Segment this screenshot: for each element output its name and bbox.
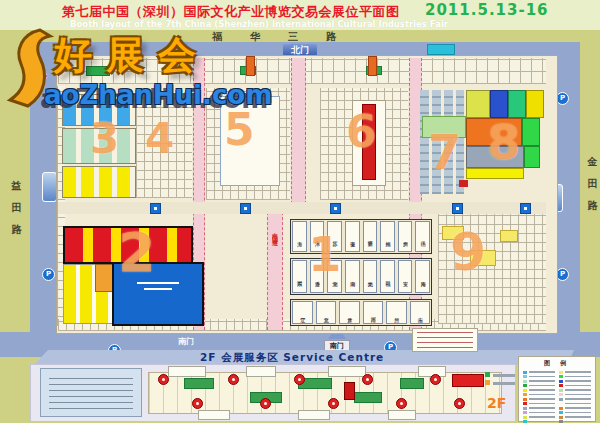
exit-marker-icon — [362, 374, 373, 385]
south-corridor-label: 南门通道 — [270, 228, 279, 236]
legend-row — [523, 393, 555, 397]
exit-marker-icon — [228, 374, 239, 385]
meeting-room-block — [400, 378, 424, 389]
facility-icon — [520, 203, 531, 214]
transit-chip — [427, 44, 455, 55]
hall7-number: 7 — [428, 128, 461, 176]
exit-marker-icon — [328, 398, 339, 409]
corridor-north-gate — [291, 58, 306, 204]
hall5-number: 5 — [224, 108, 255, 152]
province-booth: 安徽 — [345, 221, 360, 252]
service-module — [198, 410, 230, 420]
hall8-block — [524, 146, 540, 168]
legend-row — [523, 384, 555, 388]
hall8-block — [522, 118, 540, 146]
legend-row — [523, 370, 555, 374]
legend-row — [559, 384, 591, 388]
hall2-number: 2 — [118, 226, 156, 280]
province-booth: 保山 — [415, 221, 430, 252]
passage-chip — [368, 56, 377, 76]
hall3-yellow-booths — [62, 166, 136, 198]
hall9-yellow-booth — [500, 230, 518, 242]
legend-row — [559, 379, 591, 383]
facility-icon — [330, 203, 341, 214]
hall6-number: 6 — [346, 110, 377, 154]
west-road-name: 益田路 — [9, 172, 23, 238]
service-module — [168, 366, 206, 377]
exhibition-floorplan: 第七届中国（深圳）国际文化产业博览交易会展位平面图 2011.5.13-16 B… — [0, 0, 600, 423]
legend-row — [523, 402, 555, 406]
legend-row — [523, 415, 555, 419]
exit-marker-icon — [294, 374, 305, 385]
sculpture-west — [42, 172, 57, 202]
parking-icon: P — [42, 268, 55, 281]
exit-marker-icon — [430, 374, 441, 385]
legend-row — [559, 420, 591, 423]
info-text-lines — [417, 332, 473, 348]
gate-info-box — [412, 328, 478, 352]
hall1-number: 1 — [308, 230, 341, 278]
legend-row — [559, 411, 591, 415]
hall3-number: 3 — [90, 118, 119, 160]
east-road-name: 金田路 — [585, 148, 599, 214]
page-subtitle: Booth layout of the 7th China (Shenzhen)… — [70, 19, 448, 29]
hall9-number: 9 — [450, 226, 486, 278]
passage-chip — [246, 56, 255, 76]
legend-column — [559, 370, 591, 423]
facility-icon — [240, 203, 251, 214]
legend-row — [523, 379, 555, 383]
province-booth: 宝安 — [398, 260, 413, 293]
exit-marker-icon — [454, 398, 465, 409]
province-booth-row: 辽宁北京甘肃河南兰州山东 — [290, 299, 432, 326]
province-booth: 甘肃 — [339, 301, 360, 324]
entrance-chip — [86, 66, 110, 76]
legend-row — [559, 388, 591, 392]
mid-concourse — [58, 202, 546, 214]
province-booth: 贵州 — [398, 221, 413, 252]
province-booth: 福田 — [380, 260, 395, 293]
service-module — [328, 366, 366, 377]
province-booth: 兰州 — [386, 301, 407, 324]
hall4-number: 4 — [145, 118, 174, 160]
facility-icon — [150, 203, 161, 214]
province-booth: 新疆 — [363, 221, 378, 252]
service-red-block — [344, 382, 355, 400]
service-module — [298, 410, 330, 420]
legend-row — [523, 388, 555, 392]
service-red-box — [452, 374, 484, 387]
service-left-legend — [40, 368, 142, 417]
province-booth: 福州 — [380, 221, 395, 252]
exit-marker-icon — [396, 398, 407, 409]
hall8-red-chip — [459, 180, 468, 187]
legend-row — [523, 411, 555, 415]
exit-marker-icon — [158, 374, 169, 385]
hall8-block — [526, 90, 544, 118]
service-module — [246, 366, 276, 377]
legend-row — [523, 406, 555, 410]
legend-row — [559, 393, 591, 397]
province-booth: 湖南 — [345, 260, 360, 293]
legend-header: 图 例 — [519, 357, 595, 368]
province-booth: 广东团 — [292, 260, 307, 293]
province-booth: 海南 — [415, 260, 430, 293]
hall8-number: 8 — [487, 118, 520, 166]
legend-row — [523, 420, 555, 423]
event-date: 2011.5.13-16 — [425, 1, 549, 19]
south-gate-road-label: 南门 — [178, 336, 194, 347]
legend-row — [559, 370, 591, 374]
legend-row — [559, 402, 591, 406]
service-module — [388, 410, 416, 420]
legend-column — [523, 370, 555, 423]
legend-row — [559, 397, 591, 401]
legend-row — [559, 406, 591, 410]
map-legend: 图 例 — [518, 356, 596, 422]
province-booth: 北京 — [316, 301, 337, 324]
legend-row — [523, 375, 555, 379]
province-booth: 山东 — [410, 301, 431, 324]
meeting-room-block — [354, 392, 382, 403]
exit-marker-icon — [260, 398, 271, 409]
meeting-room-block — [184, 378, 214, 389]
north-road-name: 福华三路 — [212, 30, 364, 44]
legend-row — [559, 415, 591, 419]
province-booth: 龙岗 — [363, 260, 378, 293]
service-centre-title: 2F 会展服务区 Service Centre — [200, 351, 384, 365]
floor-2f-label: 2F — [487, 395, 506, 411]
province-booth: 辽宁 — [292, 301, 313, 324]
province-booth: 上海 — [292, 221, 307, 252]
province-booth: 河南 — [363, 301, 384, 324]
legend-row — [559, 375, 591, 379]
facility-icon — [452, 203, 463, 214]
compass-icon: ✦ — [40, 70, 49, 83]
blue-block-text-line — [144, 288, 172, 290]
exit-marker-icon — [192, 398, 203, 409]
legend-text-lines — [49, 375, 133, 409]
legend-row — [523, 397, 555, 401]
mini-legend-orange — [485, 370, 515, 389]
